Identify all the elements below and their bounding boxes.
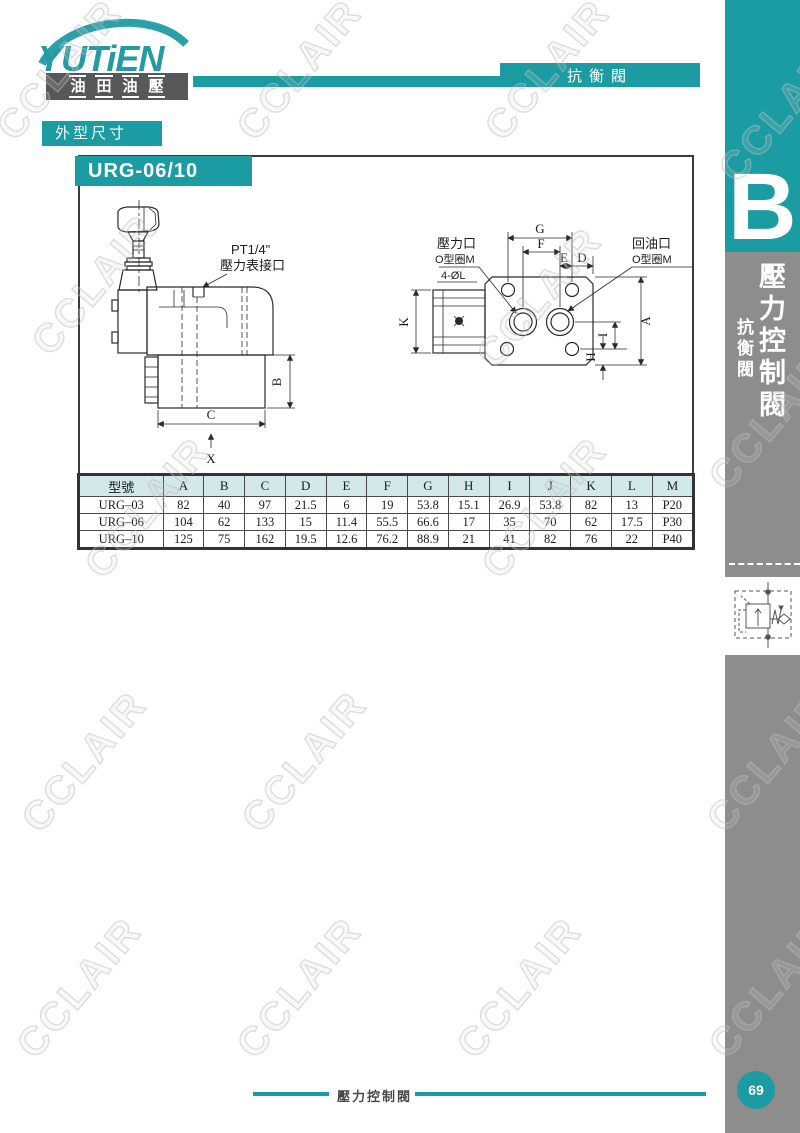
model-header: URG-06/10 xyxy=(75,156,252,186)
value-cell: 53.8 xyxy=(530,497,571,514)
value-cell: 17 xyxy=(448,514,489,531)
table-row: URG–06 104 62 133 15 11.4 55.5 66.6 17 3… xyxy=(79,514,693,531)
value-cell: 26.9 xyxy=(489,497,530,514)
value-cell: 19.5 xyxy=(285,531,326,549)
footer-label: 壓力控制閥 xyxy=(337,1086,412,1105)
oring-right-label: O型圈M xyxy=(632,252,672,266)
value-cell: 82 xyxy=(530,531,571,549)
counterbalance-valve-symbol-icon xyxy=(728,580,798,650)
value-cell: 70 xyxy=(530,514,571,531)
value-cell: 104 xyxy=(163,514,204,531)
dim-label-e: E xyxy=(560,250,568,265)
model-cell: URG–06 xyxy=(79,514,163,531)
gauge-port-label: 壓力表接口 xyxy=(220,258,285,273)
value-cell: 35 xyxy=(489,514,530,531)
col-header: C xyxy=(245,475,286,497)
value-cell: 22 xyxy=(611,531,652,549)
sidebar-title-vertical: 壓力控制閥 xyxy=(751,262,790,422)
value-cell: 15.1 xyxy=(448,497,489,514)
logo-subtitle-char: 油 xyxy=(69,75,86,98)
value-cell: 76.2 xyxy=(367,531,408,549)
col-header: G xyxy=(408,475,449,497)
value-cell: P20 xyxy=(652,497,693,514)
valve-port-face-drawing: 壓力口 O型圈M 4-ØL 回油口 O型圈M G F E D K xyxy=(396,221,693,380)
value-cell: 62 xyxy=(204,514,245,531)
value-cell: 53.8 xyxy=(408,497,449,514)
sidebar-subtitle-vertical: 抗衡閥 xyxy=(731,318,756,381)
col-header: K xyxy=(571,475,612,497)
value-cell: 15 xyxy=(285,514,326,531)
dim-label-a: A xyxy=(638,316,653,326)
section-label: 外型尺寸 xyxy=(42,121,162,146)
catalog-page: YUTiEN 油田油壓 抗衡閥 外型尺寸 B 壓力控制閥 抗衡閥 xyxy=(0,0,800,1133)
value-cell: 12.6 xyxy=(326,531,367,549)
col-header: I xyxy=(489,475,530,497)
col-header: J xyxy=(530,475,571,497)
watermark-text: CCLAIR xyxy=(228,0,371,149)
dim-label-d: D xyxy=(577,250,586,265)
value-cell: 66.6 xyxy=(408,514,449,531)
value-cell: 17.5 xyxy=(611,514,652,531)
value-cell: 6 xyxy=(326,497,367,514)
table-row: URG–03 82 40 97 21.5 6 19 53.8 15.1 26.9… xyxy=(79,497,693,514)
col-header: A xyxy=(163,475,204,497)
col-header: L xyxy=(611,475,652,497)
watermark-text: CCLAIR xyxy=(448,909,591,1067)
dim-label-k: K xyxy=(396,317,411,327)
model-cell: URG–10 xyxy=(79,531,163,549)
value-cell: 40 xyxy=(204,497,245,514)
value-cell: 88.9 xyxy=(408,531,449,549)
table-header-row: 型號 A B C D E F G H I J K L M xyxy=(79,475,693,497)
value-cell: 82 xyxy=(163,497,204,514)
value-cell: 62 xyxy=(571,514,612,531)
value-cell: 21.5 xyxy=(285,497,326,514)
value-cell: 162 xyxy=(245,531,286,549)
header-rule-bar xyxy=(193,76,502,87)
yutien-logo: YUTiEN xyxy=(36,12,196,78)
col-header: E xyxy=(326,475,367,497)
value-cell: P30 xyxy=(652,514,693,531)
sidebar-gray-block-bottom xyxy=(725,655,800,1133)
dim-label-c: C xyxy=(207,407,216,422)
footer-rule-left xyxy=(253,1092,329,1096)
logo-subtitle-box: 油田油壓 xyxy=(46,73,188,100)
dim-label-g: G xyxy=(535,221,544,236)
logo-subtitle-char: 田 xyxy=(95,75,112,98)
value-cell: 125 xyxy=(163,531,204,549)
value-cell: P40 xyxy=(652,531,693,549)
value-cell: 55.5 xyxy=(367,514,408,531)
dim-label-h: H xyxy=(583,352,598,361)
logo-subtitle-char: 油 xyxy=(122,75,139,98)
dim-label-i: I xyxy=(595,333,610,337)
value-cell: 21 xyxy=(448,531,489,549)
value-cell: 19 xyxy=(367,497,408,514)
dim-label-x: X xyxy=(206,451,216,466)
value-cell: 82 xyxy=(571,497,612,514)
dim-label-f: F xyxy=(537,236,544,251)
gauge-port-size-label: PT1/4" xyxy=(231,242,271,257)
footer-rule-right xyxy=(415,1092,706,1096)
oring-left-label: O型圈M xyxy=(435,252,475,266)
watermark-text: CCLAIR xyxy=(8,909,151,1067)
watermark-text: CCLAIR xyxy=(13,683,156,841)
value-cell: 41 xyxy=(489,531,530,549)
page-number: 69 xyxy=(748,1082,764,1098)
value-cell: 76 xyxy=(571,531,612,549)
bolt-holes-label: 4-ØL xyxy=(441,270,465,282)
logo-subtitle-char: 壓 xyxy=(148,75,165,98)
col-header: H xyxy=(448,475,489,497)
logo-text: YUTiEN xyxy=(38,38,165,78)
sidebar-section-letter: B xyxy=(728,161,797,253)
dimension-table: 型號 A B C D E F G H I J K L M URG–03 82 4… xyxy=(78,474,694,549)
value-cell: 13 xyxy=(611,497,652,514)
return-port-label: 回油口 xyxy=(632,236,671,251)
model-cell: URG–03 xyxy=(79,497,163,514)
value-cell: 75 xyxy=(204,531,245,549)
col-header: F xyxy=(367,475,408,497)
table-row: URG–10 125 75 162 19.5 12.6 76.2 88.9 21… xyxy=(79,531,693,549)
col-header: M xyxy=(652,475,693,497)
page-number-badge: 69 xyxy=(737,1071,775,1109)
value-cell: 133 xyxy=(245,514,286,531)
category-tab: 抗衡閥 xyxy=(500,63,700,87)
col-header: D xyxy=(285,475,326,497)
dim-label-b: B xyxy=(269,377,284,386)
technical-drawings: B C X PT1/4" 壓力表接口 xyxy=(79,186,693,474)
watermark-text: CCLAIR xyxy=(233,683,376,841)
col-header-model: 型號 xyxy=(79,475,163,497)
watermark-text: CCLAIR xyxy=(228,909,371,1067)
value-cell: 97 xyxy=(245,497,286,514)
value-cell: 11.4 xyxy=(326,514,367,531)
sidebar-dashed-divider xyxy=(729,563,800,565)
pressure-port-label: 壓力口 xyxy=(437,236,476,251)
col-header: B xyxy=(204,475,245,497)
valve-side-view-drawing: B C X PT1/4" 壓力表接口 xyxy=(112,200,295,466)
